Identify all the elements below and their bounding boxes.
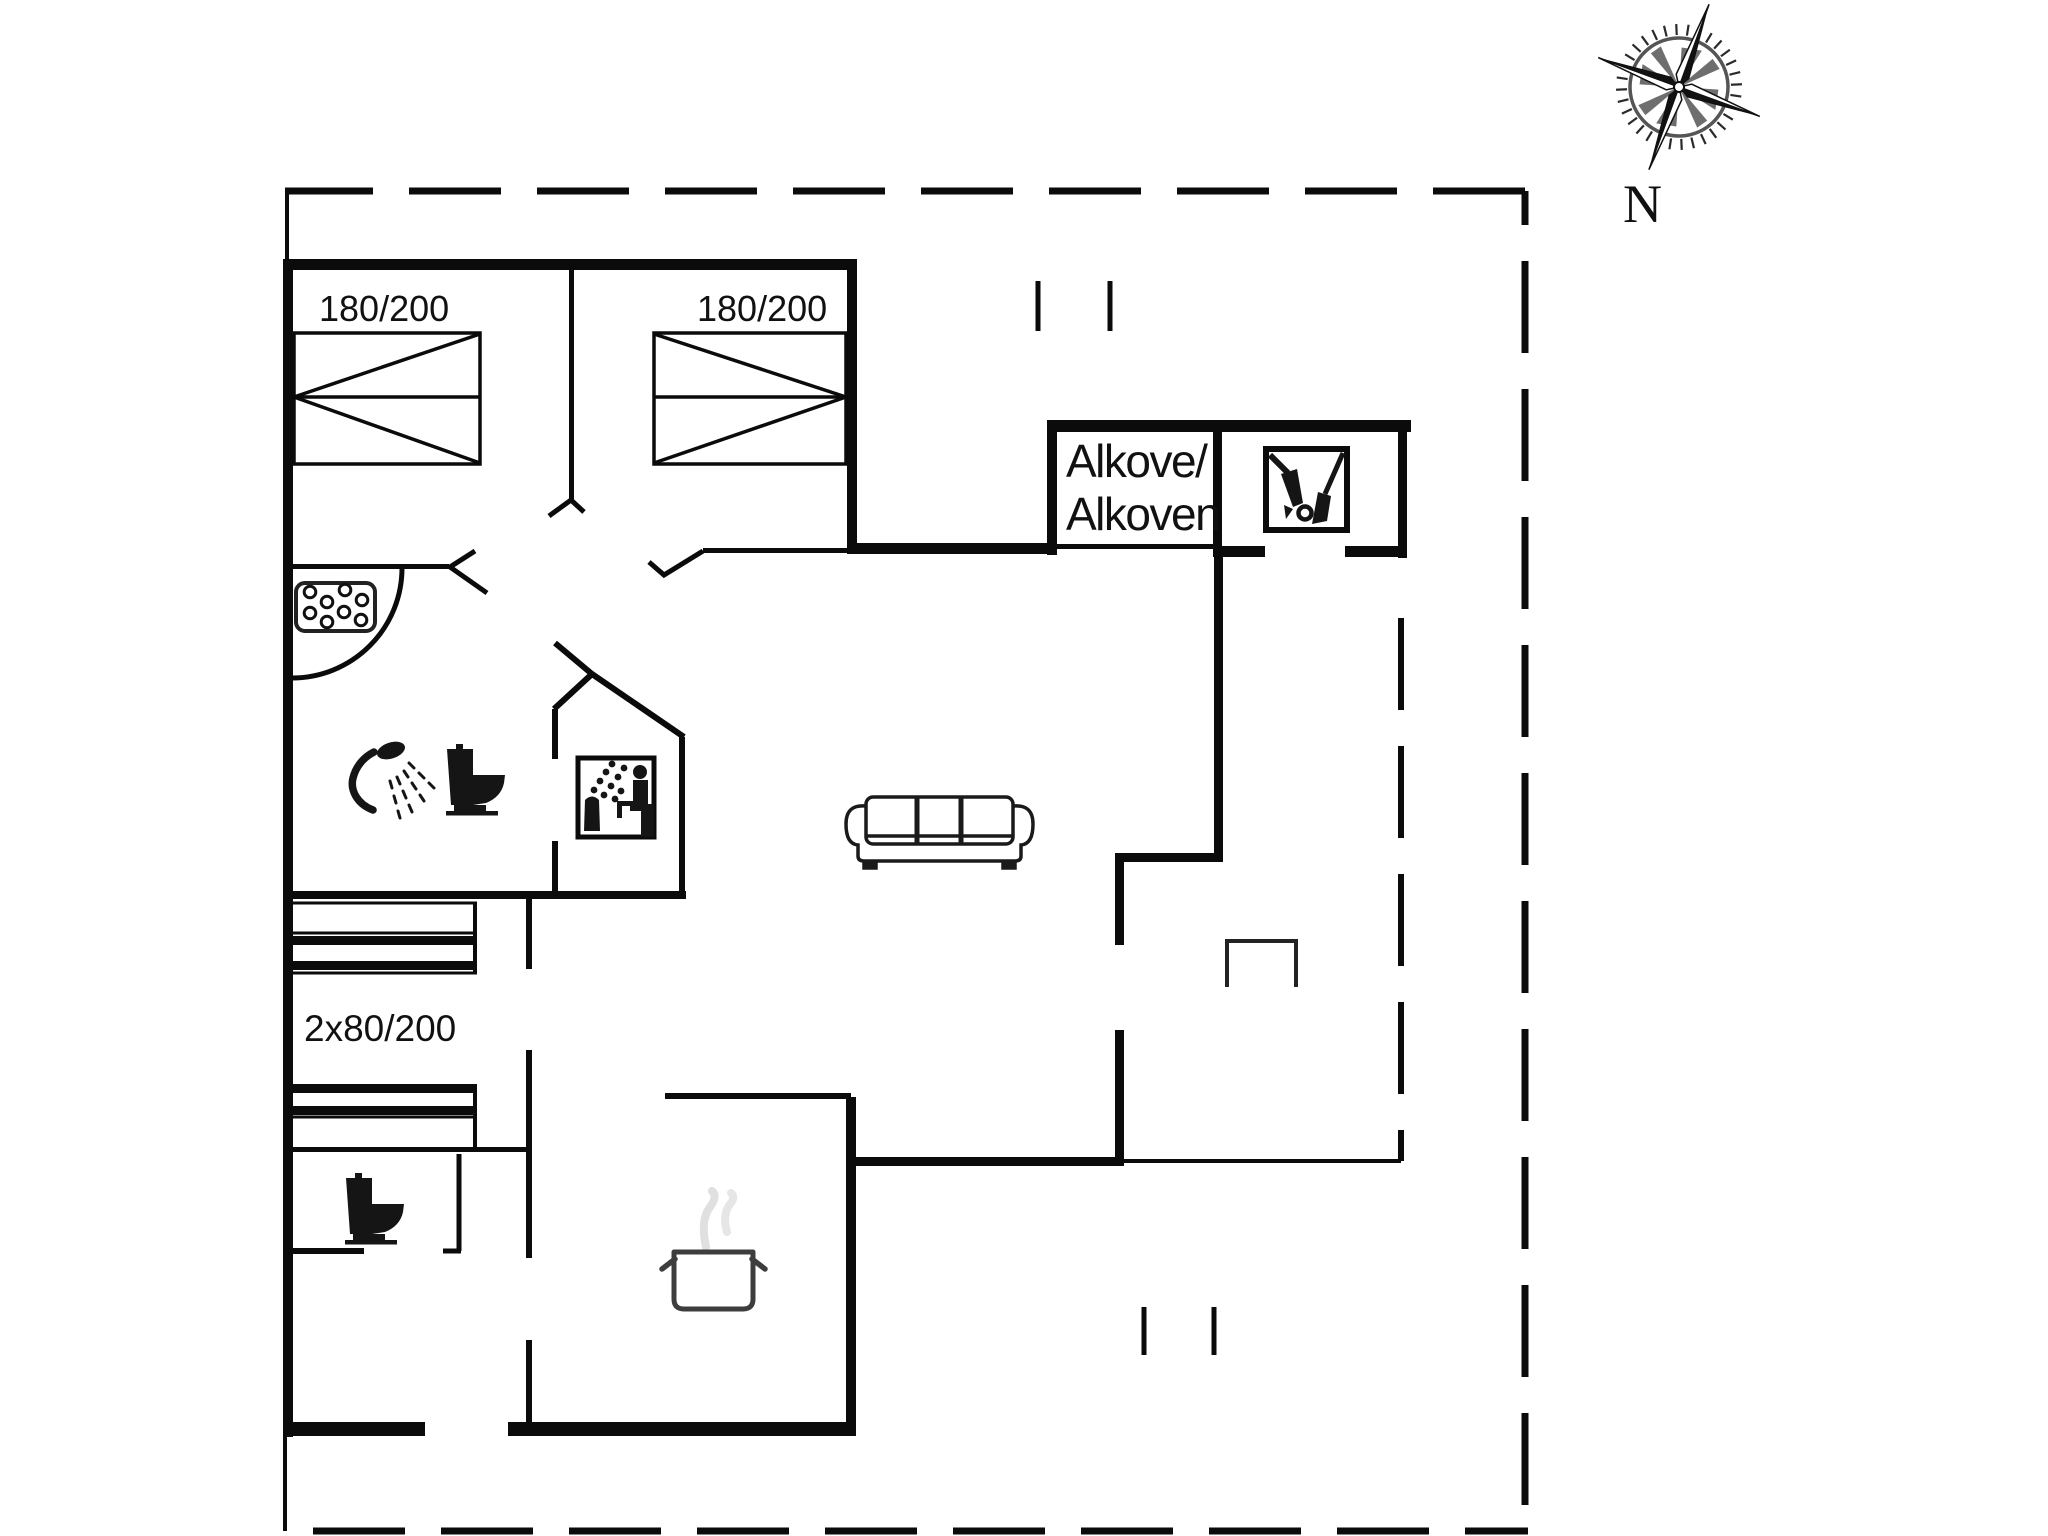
svg-text:2x80/200: 2x80/200 bbox=[304, 1008, 456, 1049]
svg-text:Alkove/: Alkove/ bbox=[1066, 435, 1208, 487]
svg-text:N: N bbox=[1623, 174, 1662, 234]
svg-text:180/200: 180/200 bbox=[697, 288, 827, 329]
svg-text:180/200: 180/200 bbox=[319, 288, 449, 329]
svg-text:Alkoven: Alkoven bbox=[1066, 488, 1219, 540]
